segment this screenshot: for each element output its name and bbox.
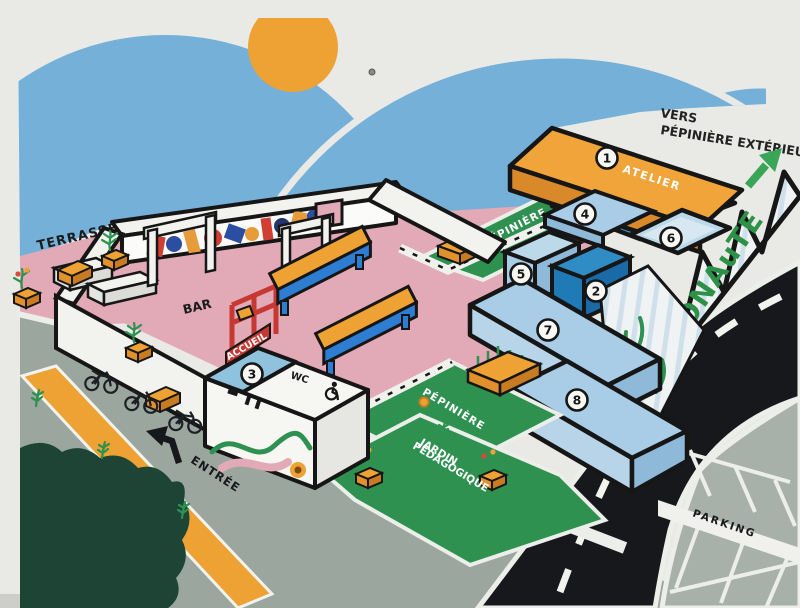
marker-8: 8 (567, 390, 588, 411)
marker-1: 1 (597, 148, 618, 169)
svg-text:7: 7 (544, 323, 553, 338)
marker-3: 3 (242, 364, 263, 385)
marker-7: 7 (538, 320, 559, 341)
svg-text:8: 8 (573, 393, 582, 408)
marker-2: 2 (586, 281, 607, 302)
svg-text:2: 2 (592, 284, 601, 299)
svg-text:5: 5 (517, 267, 526, 282)
svg-text:3: 3 (248, 367, 257, 382)
marker-6: 6 (661, 228, 682, 249)
svg-text:6: 6 (667, 231, 676, 246)
svg-text:4: 4 (581, 207, 590, 222)
marker-4: 4 (575, 204, 596, 225)
flower-icon (420, 398, 429, 407)
svg-text:1: 1 (603, 151, 612, 166)
map-illustration: PARKING L'AGrONAuTE VERS PÉPINIÈRE EXTÉR… (0, 0, 800, 608)
site-map-sign: PARKING L'AGrONAuTE VERS PÉPINIÈRE EXTÉR… (0, 0, 800, 608)
screw-dot (369, 69, 375, 75)
marker-5: 5 (511, 264, 532, 285)
